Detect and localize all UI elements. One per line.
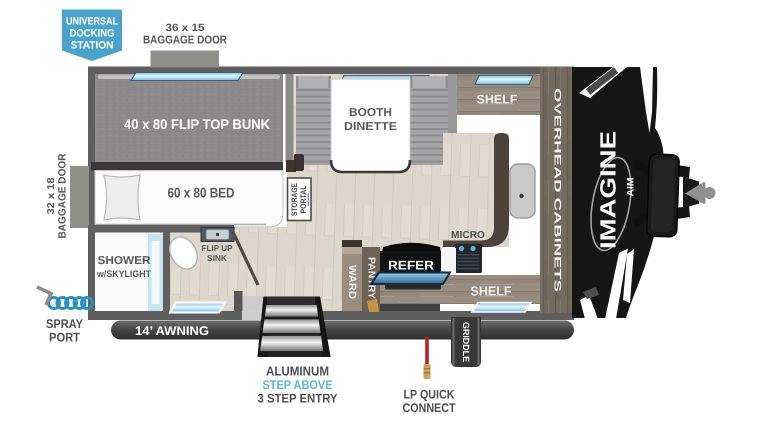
svg-text:DINETTE: DINETTE xyxy=(344,121,397,133)
svg-text:OVERHEAD CABINETS: OVERHEAD CABINETS xyxy=(552,88,563,292)
svg-text:60 x 80 BED: 60 x 80 BED xyxy=(168,185,235,201)
svg-text:STEP ABOVE: STEP ABOVE xyxy=(263,378,333,392)
svg-text:UNIVERSAL: UNIVERSAL xyxy=(66,16,118,28)
svg-text:LP QUICK: LP QUICK xyxy=(404,388,455,402)
svg-text:STORAGE: STORAGE xyxy=(290,182,299,216)
svg-text:3 STEP ENTRY: 3 STEP ENTRY xyxy=(258,392,339,406)
svg-text:14’ AWNING: 14’ AWNING xyxy=(135,324,209,338)
svg-text:AIM: AIM xyxy=(626,177,637,196)
svg-text:FLIP UP: FLIP UP xyxy=(202,243,233,253)
svg-text:WARD: WARD xyxy=(346,265,358,299)
svg-text:STATION: STATION xyxy=(71,40,114,52)
svg-text:CONNECT: CONNECT xyxy=(403,401,456,415)
svg-text:BAGGAGE DOOR: BAGGAGE DOOR xyxy=(57,153,69,238)
svg-text:w/SKYLIGHT: w/SKYLIGHT xyxy=(96,269,151,280)
svg-text:40 x 80 FLIP TOP BUNK: 40 x 80 FLIP TOP BUNK xyxy=(124,116,270,132)
svg-text:SINK: SINK xyxy=(207,253,228,263)
svg-text:36 x 15: 36 x 15 xyxy=(166,22,205,34)
svg-text:GRIDDLE: GRIDDLE xyxy=(461,322,471,362)
svg-text:SHOWER: SHOWER xyxy=(98,255,152,267)
svg-text:ALUMINUM: ALUMINUM xyxy=(266,364,329,379)
svg-text:SHELF: SHELF xyxy=(471,284,512,299)
svg-text:SPRAY: SPRAY xyxy=(46,317,84,331)
svg-text:IMAGINE: IMAGINE xyxy=(596,131,621,249)
svg-text:REFER: REFER xyxy=(388,259,434,273)
svg-text:MICRO: MICRO xyxy=(451,230,485,241)
svg-text:PORTAL: PORTAL xyxy=(299,185,308,213)
svg-text:SHELF: SHELF xyxy=(477,93,518,107)
svg-text:DOCKING: DOCKING xyxy=(70,28,115,40)
svg-text:PORT: PORT xyxy=(49,331,80,345)
svg-text:32 x 18: 32 x 18 xyxy=(46,177,57,214)
svg-text:BOOTH: BOOTH xyxy=(349,107,392,119)
svg-text:BAGGAGE DOOR: BAGGAGE DOOR xyxy=(143,35,228,47)
